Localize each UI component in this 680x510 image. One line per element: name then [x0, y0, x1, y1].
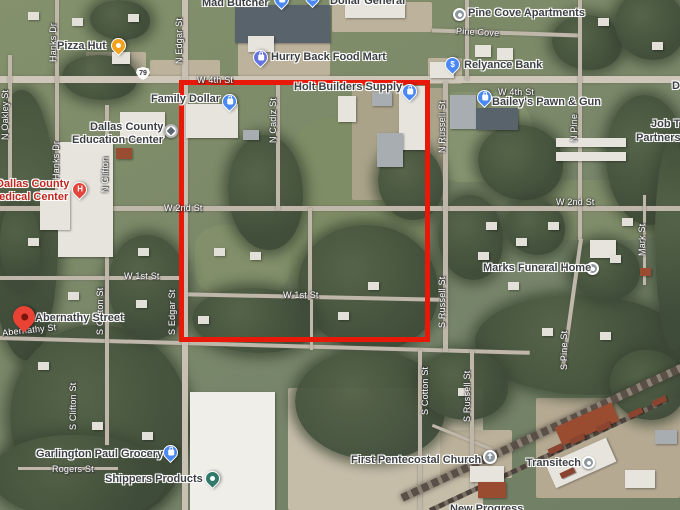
poi-transitech[interactable]: Transitech	[526, 457, 581, 469]
house	[600, 332, 611, 340]
street-label: Hanks Dr	[51, 141, 61, 180]
bldg-church	[470, 466, 504, 482]
house	[622, 218, 633, 226]
street-label: N Oakley St	[0, 90, 10, 140]
bldg	[625, 470, 655, 488]
bldg-mobile-unit	[556, 138, 626, 147]
bldg-warehouse	[450, 95, 476, 129]
street-label: N Clifton	[100, 157, 110, 193]
poi-medical-center-line2[interactable]: Medical Center	[0, 191, 68, 203]
house	[68, 292, 79, 300]
house	[516, 238, 527, 246]
poi-holt-builders-supply[interactable]: Holt Builders Supply	[294, 81, 402, 93]
street-label: S Pine St	[559, 331, 569, 370]
house	[478, 252, 489, 260]
transitech-pin[interactable]	[582, 456, 595, 469]
street-label: Rogers St	[52, 464, 94, 474]
street-label: W 1st St	[283, 290, 319, 300]
poi-new-progress-cutoff[interactable]: New Progress	[450, 503, 523, 510]
house	[598, 18, 609, 26]
poi-family-dollar[interactable]: Family Dollar	[151, 93, 220, 105]
poi-first-pentecostal-church[interactable]: First Pentecostal Church	[351, 454, 481, 466]
house	[142, 432, 153, 440]
poi-pizza-hut[interactable]: Pizza Hut	[57, 40, 106, 52]
church-cross-pin[interactable]: ✝	[483, 450, 497, 464]
poi-job-partnership-line2[interactable]: Partnersh	[636, 132, 680, 144]
street-label: N Edgar St	[174, 18, 184, 64]
poi-abernathy-street[interactable]: Abernathy Street	[35, 312, 124, 324]
house	[486, 222, 497, 230]
bldg-pizza-hut	[112, 52, 130, 64]
house	[38, 362, 49, 370]
bldg-church-roof	[478, 482, 506, 498]
poi-relyance-bank[interactable]: Relyance Bank	[464, 59, 542, 71]
poi-pine-cove-apartments[interactable]: Pine Cove Apartments	[468, 7, 585, 19]
poi-mad-butcher[interactable]: Mad Butcher	[202, 0, 269, 9]
poi-cutoff-label[interactable]: D	[672, 80, 680, 92]
trees	[90, 0, 150, 40]
trees	[552, 15, 622, 70]
poi-shippers-products[interactable]: Shippers Products	[105, 473, 203, 485]
house	[92, 422, 103, 430]
street-label: N Pine	[569, 114, 579, 142]
poi-garlington-paul-grocery[interactable]: Garlington Paul Grocery	[36, 448, 163, 460]
poi-marks-funeral-home[interactable]: Marks Funeral Home	[483, 262, 591, 274]
house	[542, 328, 553, 336]
trees	[478, 125, 563, 200]
street-label: S Cotton St	[420, 367, 430, 415]
house	[548, 222, 559, 230]
street-label: W 4th St	[197, 75, 233, 85]
house	[28, 12, 39, 20]
house	[652, 42, 663, 50]
poi-hurry-back-food-mart[interactable]: Hurry Back Food Mart	[271, 51, 386, 63]
street-label: S Russell St	[462, 371, 472, 422]
street-label: N Cadiz St	[268, 98, 278, 143]
street-label: W 2nd St	[556, 197, 595, 207]
bldg-shippers-warehouse	[190, 392, 275, 510]
poi-baileys-pawn-gun[interactable]: Bailey's Pawn & Gun	[492, 96, 601, 108]
poi-education-center-line2[interactable]: Education Center	[72, 134, 163, 146]
house	[72, 18, 83, 26]
bldg-red-roof	[116, 148, 132, 159]
pine-cove-apartments-pin[interactable]	[453, 8, 466, 21]
street-label: N Russell St	[437, 101, 447, 153]
trees	[615, 0, 680, 60]
poi-medical-center-line1[interactable]: Dallas County	[0, 178, 69, 190]
bldg	[655, 430, 677, 444]
satellite-map[interactable]: 79 N Oakley St Hanks Dr Hanks Dr N Edgar…	[0, 0, 680, 510]
street-label: S Edgar St	[167, 289, 177, 335]
street-label: Mark St	[637, 224, 647, 256]
bldg-mobile-unit	[556, 152, 626, 161]
bldg-baileys	[476, 108, 518, 130]
street-label: W 2nd St	[164, 203, 203, 213]
bldg-apartment	[475, 45, 491, 57]
house	[610, 255, 621, 263]
poi-education-center-line1[interactable]: Dallas County	[90, 121, 163, 133]
poi-dollar-general[interactable]: Dollar General	[330, 0, 405, 7]
house	[508, 282, 519, 290]
highlight-rectangle	[179, 80, 430, 342]
street-label: W 1st St	[124, 271, 160, 281]
street-label: S Russell St	[437, 277, 447, 328]
education-center-pin[interactable]	[164, 124, 178, 138]
house	[640, 268, 651, 276]
house	[28, 238, 39, 246]
poi-job-partnership-line1[interactable]: Job T	[651, 118, 680, 130]
house	[138, 248, 149, 256]
house	[136, 300, 147, 308]
street-label: S Clifton St	[68, 383, 78, 430]
house	[128, 14, 139, 22]
